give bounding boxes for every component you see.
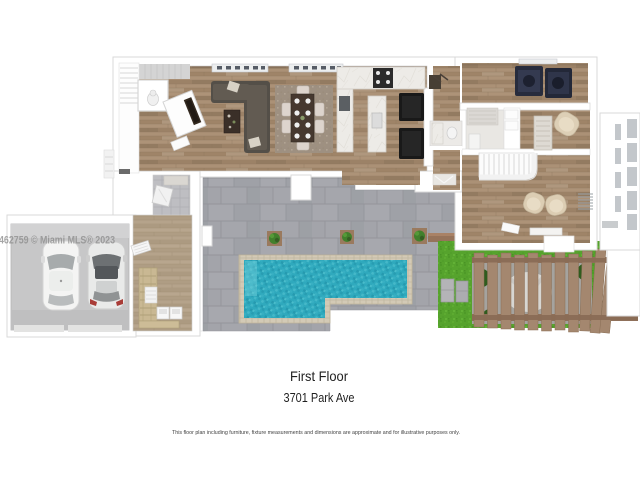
svg-text:462759 © Miami MLS® 2023: 462759 © Miami MLS® 2023	[0, 235, 115, 247]
svg-text:First Floor: First Floor	[290, 368, 348, 384]
svg-text:This floor plan including furn: This floor plan including furniture, fix…	[172, 430, 460, 436]
svg-text:3701 Park Ave: 3701 Park Ave	[284, 390, 355, 405]
